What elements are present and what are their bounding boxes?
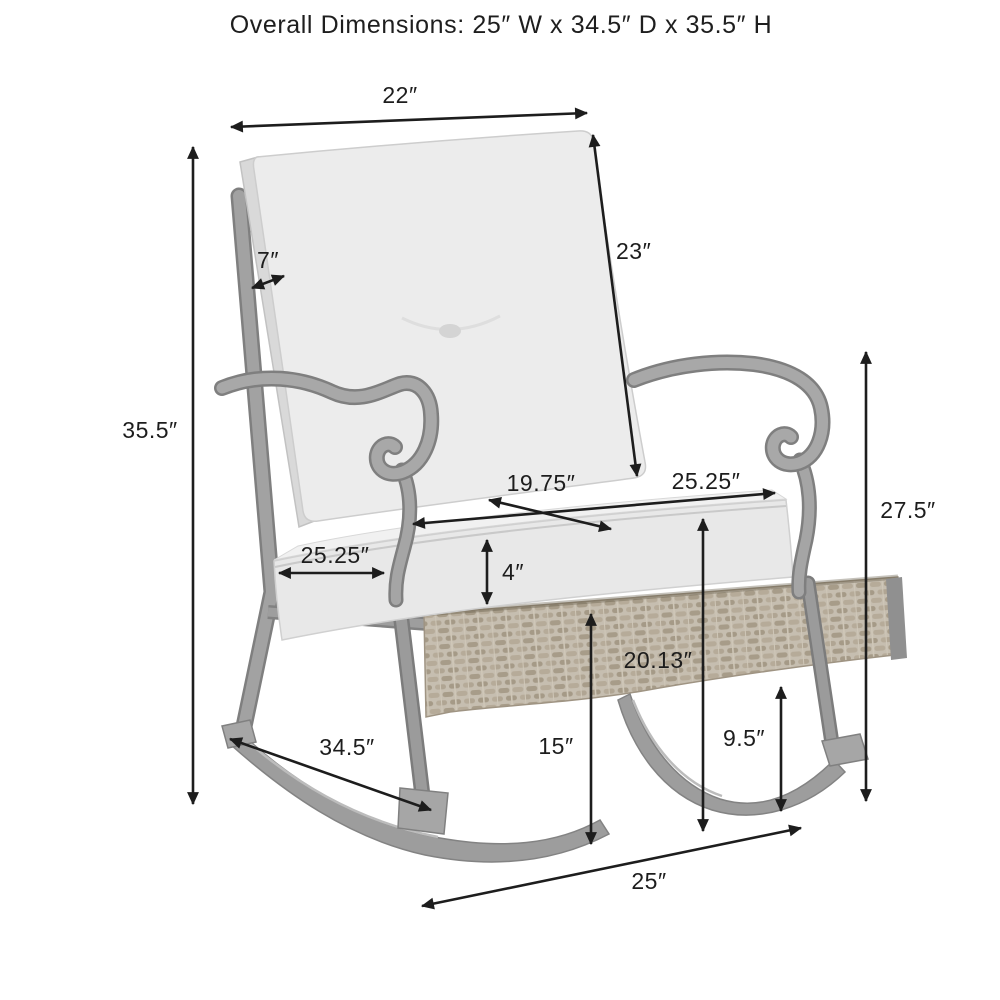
seat-interior-label: 19.75″ bbox=[507, 470, 576, 496]
dimension-diagram: Overall Dimensions: 25″ W x 34.5″ D x 35… bbox=[0, 0, 1000, 1000]
diagram-root: Overall Dimensions: 25″ W x 34.5″ D x 35… bbox=[0, 0, 1000, 1000]
dim-overall-width: 25″ bbox=[422, 828, 801, 906]
dim-rocker-clearance: 9.5″ bbox=[723, 687, 781, 811]
seat-width-label: 25.25″ bbox=[672, 468, 741, 494]
tuft-button bbox=[439, 324, 461, 338]
back-cushion bbox=[240, 131, 646, 527]
left-rocker-tip-cap bbox=[222, 720, 256, 748]
dim-back-width: 22″ bbox=[231, 82, 587, 127]
deck-height-label: 15″ bbox=[538, 733, 573, 759]
back-thickness-label: 7″ bbox=[257, 247, 279, 273]
cushion-thickness-label: 4″ bbox=[502, 559, 524, 585]
dim-overall-height: 35.5″ bbox=[122, 147, 193, 804]
back-width-arrow bbox=[231, 113, 587, 127]
overall-width-label: 25″ bbox=[631, 868, 666, 894]
back-width-label: 22″ bbox=[382, 82, 417, 108]
left-foot-block bbox=[398, 788, 448, 834]
right-rocker-band bbox=[618, 694, 845, 815]
rocker-clearance-label: 9.5″ bbox=[723, 725, 765, 751]
page-title: Overall Dimensions: 25″ W x 34.5″ D x 35… bbox=[230, 11, 773, 39]
seat-depth-label: 25.25″ bbox=[301, 542, 370, 568]
arm-height-label: 27.5″ bbox=[880, 497, 935, 523]
rocker-depth-label: 34.5″ bbox=[319, 734, 374, 760]
overall-height-label: 35.5″ bbox=[122, 417, 177, 443]
back-height-label: 23″ bbox=[616, 238, 651, 264]
seat-height-label: 20.13″ bbox=[624, 647, 693, 673]
overall-width-arrow bbox=[422, 828, 801, 906]
